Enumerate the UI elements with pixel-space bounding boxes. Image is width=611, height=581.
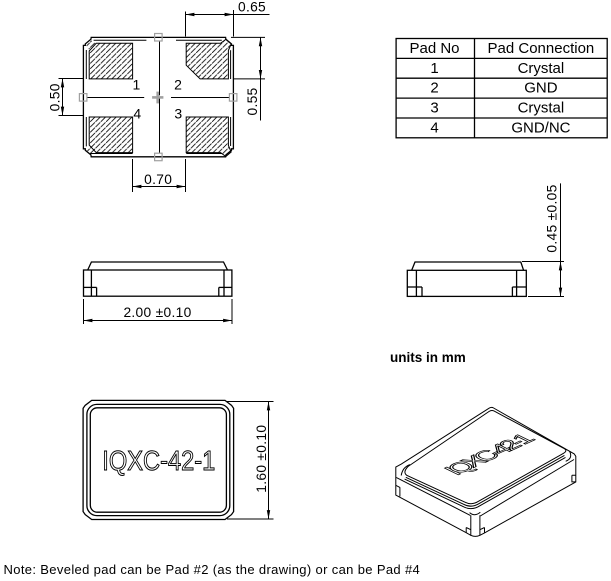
svg-text:0.45 ±0.05: 0.45 ±0.05 — [545, 184, 560, 252]
svg-text:2: 2 — [174, 77, 182, 93]
svg-text:1: 1 — [430, 60, 438, 77]
svg-text:1: 1 — [133, 77, 141, 93]
svg-text:IQXC-42-1: IQXC-42-1 — [102, 445, 215, 476]
svg-text:0.65: 0.65 — [238, 0, 266, 15]
svg-text:Crystal: Crystal — [518, 60, 565, 77]
svg-text:4: 4 — [430, 120, 438, 137]
svg-text:Pad No: Pad No — [409, 40, 459, 57]
svg-text:3: 3 — [174, 105, 182, 121]
svg-text:units in mm: units in mm — [390, 350, 466, 365]
svg-text:Pad Connection: Pad Connection — [488, 40, 595, 57]
svg-text:2.00 ±0.10: 2.00 ±0.10 — [123, 305, 191, 320]
svg-text:0.55: 0.55 — [245, 87, 260, 115]
svg-text:1.60 ±0.10: 1.60 ±0.10 — [254, 425, 269, 493]
svg-text:2: 2 — [430, 80, 438, 97]
svg-text:GND/NC: GND/NC — [511, 120, 570, 137]
svg-text:Crystal: Crystal — [518, 100, 565, 117]
svg-text:0.50: 0.50 — [48, 83, 63, 111]
svg-text:4: 4 — [133, 105, 141, 121]
svg-text:3: 3 — [430, 100, 438, 117]
svg-text:0.70: 0.70 — [144, 172, 172, 187]
svg-text:GND: GND — [524, 80, 558, 97]
svg-text:Note: Beveled pad can be Pad #: Note: Beveled pad can be Pad #2 (as the … — [4, 562, 421, 577]
